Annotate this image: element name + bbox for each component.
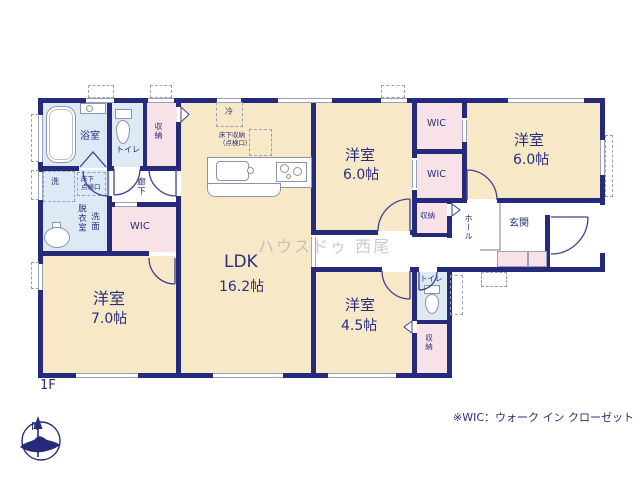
entrance-step-line xyxy=(480,203,500,250)
shoe-cabinet-icon xyxy=(528,251,547,267)
wall-segment xyxy=(417,320,447,324)
sliding-door xyxy=(115,202,137,207)
room-label-closet-upper: 収納 xyxy=(154,122,162,140)
window xyxy=(148,98,174,103)
wall-segment xyxy=(137,202,181,207)
eaves-dashed-box xyxy=(450,275,463,315)
room-label-corridor: 廊下 xyxy=(136,177,145,196)
room-label-dressing: 脱衣室 xyxy=(77,204,86,233)
eaves-dashed-box xyxy=(381,85,405,98)
wall-segment xyxy=(107,102,112,171)
room-size-bedroom-west: 7.0帖 xyxy=(91,311,127,327)
room-size-ldk: 16.2帖 xyxy=(219,279,264,295)
sliding-door xyxy=(462,120,467,142)
wall-segment xyxy=(447,216,452,238)
window xyxy=(213,373,283,378)
floorplan-canvas: 浴室 トイレ 収納 洗 床下 点検口 廊下 脱衣室 洗面 WIC 洋室 7.0帖… xyxy=(0,0,640,480)
eaves-dashed-box xyxy=(31,170,39,200)
underfloor-storage-box xyxy=(249,129,272,156)
wall-segment xyxy=(176,196,181,378)
bath-counter-icon xyxy=(80,103,106,114)
stove-burner-icon xyxy=(293,167,302,176)
bath-basin-icon xyxy=(86,105,93,112)
washbasin-icon xyxy=(44,227,70,248)
door-arc-entrance xyxy=(551,217,588,254)
room-label-wic-north: WIC xyxy=(427,119,446,130)
shoe-cabinet-icon xyxy=(497,251,528,267)
wic-note: ※WIC：ウォーク イン クローゼット xyxy=(453,412,634,425)
stove-burner-icon xyxy=(280,164,289,173)
sliding-door xyxy=(412,160,417,188)
wall-segment xyxy=(176,98,181,107)
wall-segment xyxy=(600,98,605,140)
wall-segment xyxy=(38,251,149,256)
door-arc-corridor xyxy=(149,169,176,196)
wall-segment xyxy=(412,98,417,158)
wall-segment xyxy=(412,333,417,378)
bathtub-icon xyxy=(46,106,76,163)
room-label-closet-hall: 収納 xyxy=(420,212,435,221)
washing-machine-label: 洗 xyxy=(51,177,59,186)
room-label-ldk: LDK xyxy=(224,253,258,273)
eaves-dashed-box xyxy=(150,85,172,98)
underfloor-storage-label: 床下収納 （点検口） xyxy=(219,132,252,148)
wall-segment xyxy=(412,149,467,154)
eaves-dashed-box xyxy=(31,114,39,162)
wall-segment xyxy=(462,98,467,118)
room-label-hall: ホール xyxy=(464,214,472,241)
wall-segment xyxy=(311,267,382,272)
room-label-lavatory: 洗面 xyxy=(90,212,99,231)
room-label-bedroom-south: 洋室 xyxy=(345,297,375,314)
wall-segment xyxy=(140,166,181,171)
wall-segment xyxy=(412,198,467,203)
room-label-toilet-lower: トイレ xyxy=(420,275,443,284)
room-label-bedroom-center: 洋室 xyxy=(345,147,375,164)
wall-segment xyxy=(412,190,417,233)
room-label-bedroom-west: 洋室 xyxy=(93,290,125,308)
porch-step-dashed-box xyxy=(481,272,507,287)
wall-segment xyxy=(311,267,316,378)
room-bedroom-east xyxy=(467,102,600,199)
room-label-wic-west: WIC xyxy=(130,221,150,233)
compass-needle xyxy=(34,416,43,429)
wall-segment xyxy=(437,267,605,272)
underfloor-hatch-label: 床下 点検口 xyxy=(81,176,101,192)
window xyxy=(328,373,396,378)
room-label-bedroom-east: 洋室 xyxy=(514,132,544,149)
room-size-bedroom-center: 6.0帖 xyxy=(343,167,379,183)
stove-burner-icon xyxy=(286,174,291,179)
wall-segment xyxy=(176,122,181,169)
eaves-dashed-box xyxy=(88,85,114,98)
wall-segment xyxy=(143,102,147,166)
kitchen-counter-return-icon xyxy=(207,183,281,197)
wall-segment xyxy=(447,198,452,204)
compass-north-label: N xyxy=(31,420,39,433)
window xyxy=(278,98,332,103)
refrigerator-label: 冷 xyxy=(225,107,233,116)
wall-segment xyxy=(412,267,417,321)
room-size-bedroom-south: 4.5帖 xyxy=(341,318,377,334)
eaves-dashed-box xyxy=(605,135,613,197)
toilet-tank-icon xyxy=(424,285,440,294)
washbasin-faucet-icon xyxy=(52,222,61,228)
floor-label: 1F xyxy=(40,379,56,394)
window xyxy=(508,98,584,103)
compass-landmass xyxy=(20,436,60,452)
kitchen-faucet-icon xyxy=(247,167,254,174)
room-label-closet-south: 収納 xyxy=(425,334,433,351)
wall-segment xyxy=(412,233,452,237)
room-label-bathroom: 浴室 xyxy=(80,131,100,143)
toilet-tank-icon xyxy=(115,109,132,119)
wall-segment xyxy=(600,253,605,267)
wall-segment xyxy=(107,196,112,251)
kitchen-sink-icon xyxy=(216,161,249,181)
closet-door-flap xyxy=(452,204,460,216)
compass-icon: N xyxy=(20,416,60,460)
window xyxy=(76,373,138,378)
wall-segment xyxy=(497,198,605,203)
wall-segment xyxy=(462,142,467,203)
eaves-dashed-box xyxy=(31,262,39,289)
window xyxy=(381,98,407,103)
room-size-bedroom-east: 6.0帖 xyxy=(513,152,549,168)
room-label-entrance: 玄関 xyxy=(509,218,529,230)
room-label-wic-south: WIC xyxy=(427,170,446,181)
room-label-toilet-upper: トイレ xyxy=(116,145,140,154)
watermark: ハウスドゥ 西尾 xyxy=(258,233,391,257)
washing-machine-space xyxy=(43,171,75,202)
